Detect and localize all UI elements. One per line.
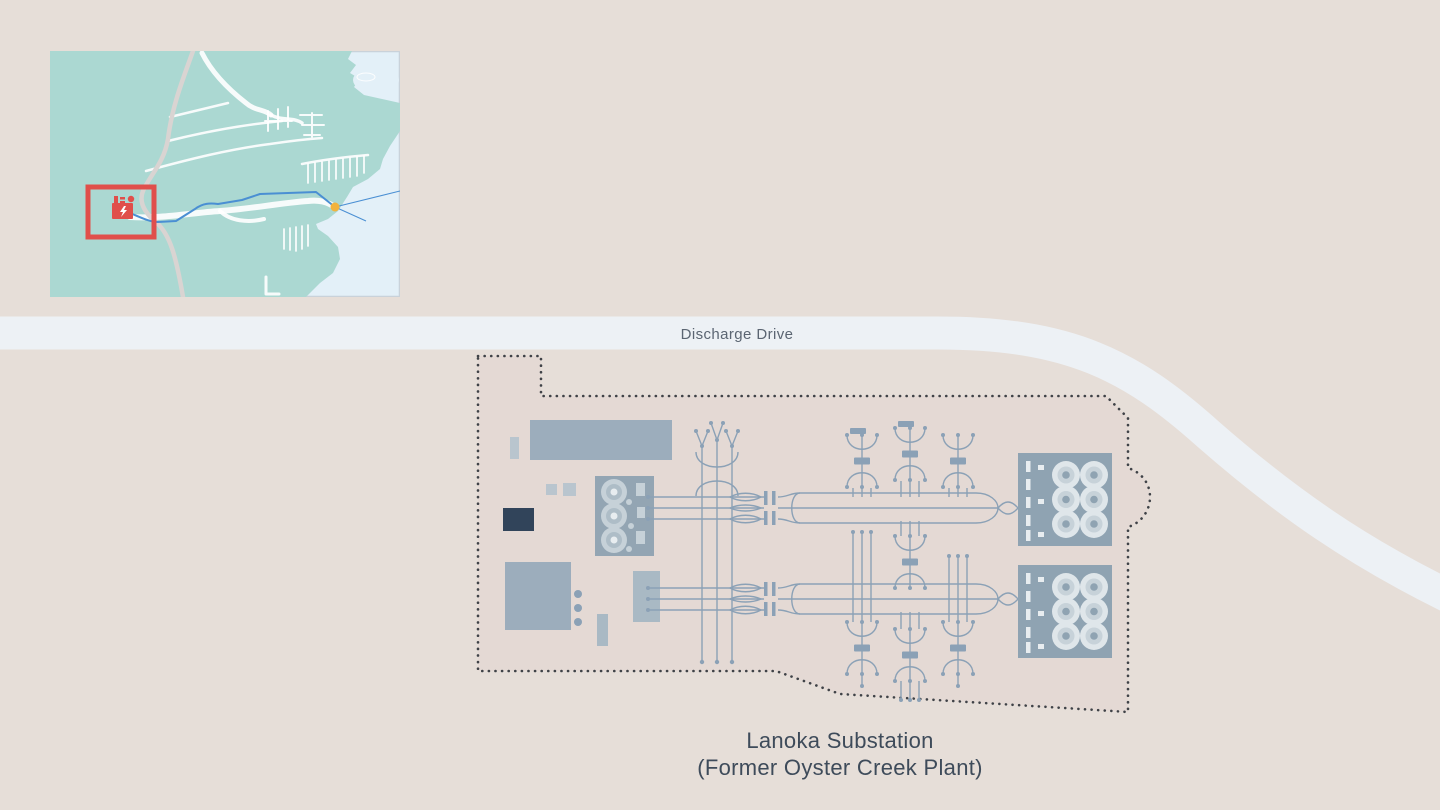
site-caption: Lanoka Substation (Former Oyster Creek P… <box>697 728 983 780</box>
transformer-bank-top <box>1018 453 1112 546</box>
tank-3 <box>574 618 582 626</box>
building-tall <box>633 571 660 622</box>
building-sq-a <box>546 484 557 495</box>
locator-inset-map <box>50 51 400 297</box>
substation-site <box>478 356 1150 712</box>
building-small-strip <box>510 437 519 459</box>
inset-bay <box>353 67 399 93</box>
site-title-line2: (Former Oyster Creek Plant) <box>697 755 983 780</box>
tank-2 <box>574 604 582 612</box>
power-plant-icon <box>112 196 134 219</box>
building-dark <box>503 508 534 531</box>
tank-1 <box>574 590 582 598</box>
building-square <box>505 562 571 630</box>
equipment-pad <box>595 476 654 556</box>
site-title-line1: Lanoka Substation <box>746 728 933 753</box>
transformer-bank-bottom <box>1018 565 1112 658</box>
building-narrow <box>597 614 608 646</box>
junction-dot-icon <box>331 203 340 212</box>
road-label: Discharge Drive <box>681 326 794 343</box>
map-canvas: Discharge Drive <box>0 0 1440 810</box>
building-sq-b <box>563 483 576 496</box>
building-long <box>530 420 672 460</box>
